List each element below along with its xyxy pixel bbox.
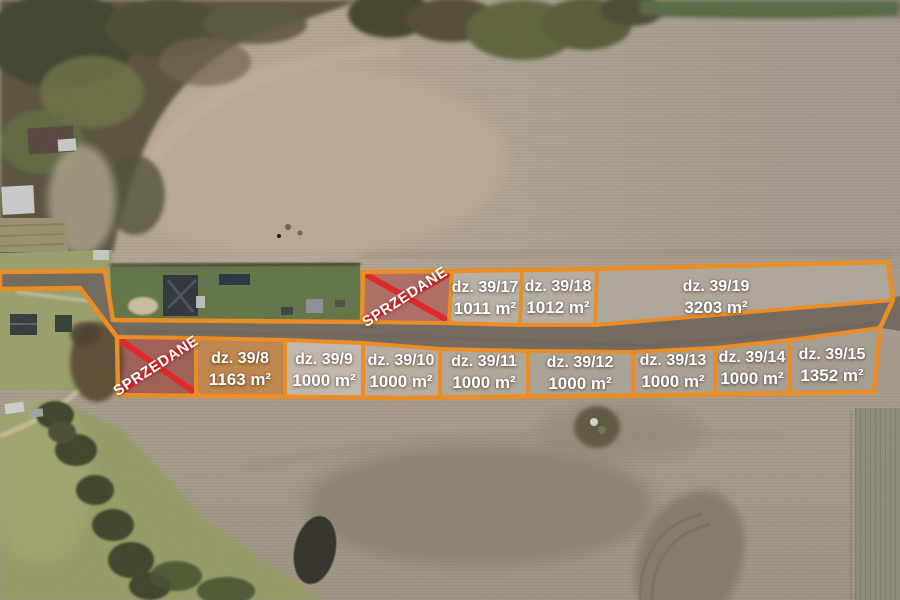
scene-svg	[0, 0, 900, 600]
aerial-photo: SPRZEDANE dz. 39/17 1011 m² dz. 39/18 10…	[0, 0, 900, 600]
grain-overlay	[0, 0, 900, 600]
